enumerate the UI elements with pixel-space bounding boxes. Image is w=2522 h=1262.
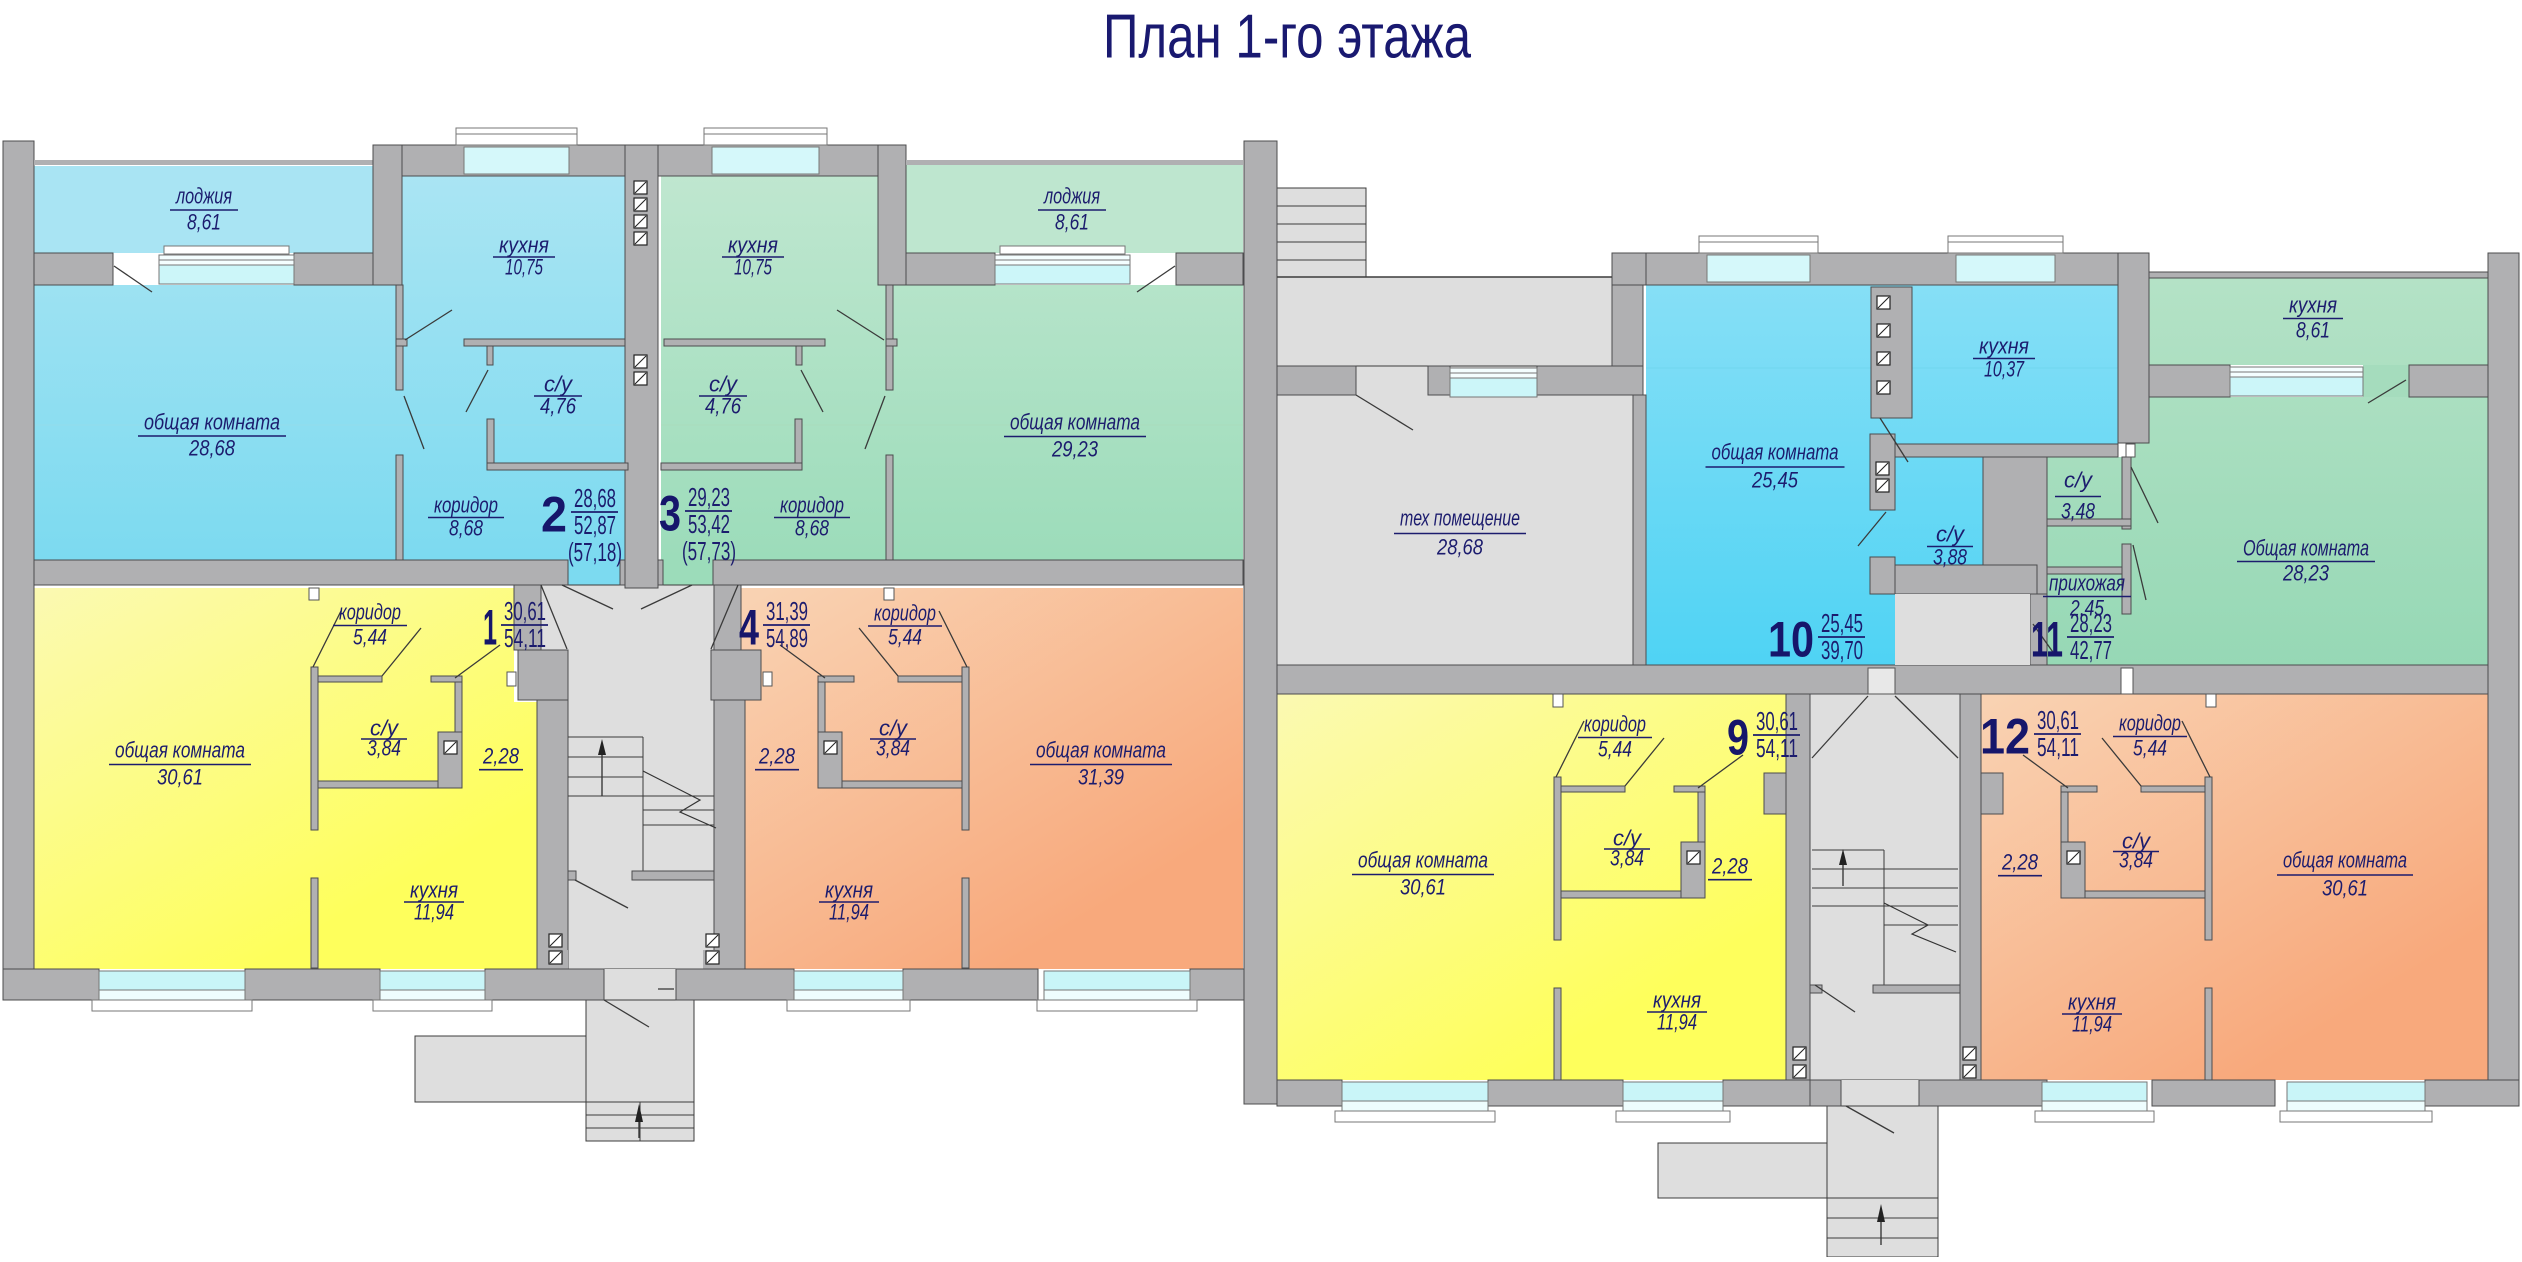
svg-text:9: 9 [1727,710,1749,766]
svg-text:коридор: коридор [339,600,401,625]
svg-text:8,68: 8,68 [449,516,484,541]
svg-text:3: 3 [659,486,681,542]
svg-text:с/у: с/у [1936,522,1966,547]
svg-text:2,28: 2,28 [482,744,519,769]
svg-text:54,11: 54,11 [1756,733,1798,763]
svg-text:3,84: 3,84 [1610,846,1644,871]
svg-text:8,61: 8,61 [1055,210,1089,235]
svg-text:29,23: 29,23 [1051,437,1098,462]
svg-text:4,76: 4,76 [705,394,742,419]
svg-text:28,68: 28,68 [1436,535,1483,560]
svg-text:коридор: коридор [780,493,844,518]
svg-text:5,44: 5,44 [1598,737,1632,762]
svg-text:11: 11 [2031,612,2063,668]
svg-text:52,87: 52,87 [574,510,616,540]
svg-text:1: 1 [483,600,497,656]
svg-text:31,39: 31,39 [766,596,808,626]
svg-text:28,68: 28,68 [574,483,616,513]
svg-text:11,94: 11,94 [829,900,869,925]
svg-text:Общая комната: Общая комната [2243,536,2369,561]
svg-text:10,75: 10,75 [505,255,544,280]
svg-text:8,61: 8,61 [2296,318,2330,343]
svg-text:тех помещение: тех помещение [1400,506,1520,531]
svg-text:общая комната: общая комната [2283,848,2407,873]
svg-text:общая комната: общая комната [1712,440,1839,465]
svg-text:общая комната: общая комната [1010,410,1140,435]
svg-text:3,84: 3,84 [367,736,401,761]
svg-text:12: 12 [1980,709,2030,765]
svg-text:39,70: 39,70 [1821,635,1863,665]
svg-text:3,88: 3,88 [1933,545,1968,570]
svg-text:10,37: 10,37 [1984,357,2025,382]
svg-text:(57,18): (57,18) [568,537,622,567]
svg-text:31,39: 31,39 [1078,765,1124,790]
svg-text:2,28: 2,28 [2001,850,2038,875]
svg-text:кухня: кухня [1979,334,2029,359]
svg-text:30,61: 30,61 [2037,705,2079,735]
svg-text:8,68: 8,68 [795,516,830,541]
svg-text:30,61: 30,61 [504,596,546,626]
svg-text:10: 10 [1768,612,1814,668]
svg-text:54,11: 54,11 [504,623,546,653]
svg-text:54,89: 54,89 [766,623,808,653]
svg-text:общая комната: общая комната [144,410,280,435]
svg-text:11,94: 11,94 [2072,1012,2112,1037]
svg-text:прихожая: прихожая [2049,571,2125,596]
svg-text:30,61: 30,61 [1400,875,1446,900]
svg-text:4: 4 [739,600,759,656]
svg-text:28,23: 28,23 [2070,608,2112,638]
svg-text:42,77: 42,77 [2070,635,2112,665]
svg-text:28,68: 28,68 [188,436,235,461]
svg-text:3,84: 3,84 [876,736,910,761]
svg-text:3,48: 3,48 [2061,499,2096,524]
svg-text:30,61: 30,61 [2322,876,2368,901]
svg-text:25,45: 25,45 [1821,608,1863,638]
svg-text:11,94: 11,94 [1657,1010,1697,1035]
svg-text:4,76: 4,76 [540,394,577,419]
svg-text:лоджия: лоджия [175,184,233,209]
svg-text:29,23: 29,23 [688,482,730,512]
svg-text:коридор: коридор [2119,711,2181,736]
svg-text:3,84: 3,84 [2119,848,2153,873]
svg-text:11,94: 11,94 [414,900,454,925]
svg-text:30,61: 30,61 [1756,706,1798,736]
svg-text:общая комната: общая комната [1036,738,1166,763]
svg-text:5,44: 5,44 [353,625,387,650]
svg-text:(57,73): (57,73) [682,536,736,566]
svg-text:коридор: коридор [1584,712,1646,737]
svg-text:53,42: 53,42 [688,509,730,539]
svg-text:лоджия: лоджия [1043,184,1101,209]
svg-text:с/у: с/у [2064,468,2094,493]
svg-text:общая комната: общая комната [1358,848,1488,873]
svg-text:8,61: 8,61 [187,210,221,235]
svg-text:10,75: 10,75 [734,255,773,280]
svg-text:5,44: 5,44 [888,625,922,650]
svg-text:28,23: 28,23 [2282,561,2329,586]
svg-text:План 1-го этажа: План 1-го этажа [1103,3,1471,72]
svg-text:кухня: кухня [2289,293,2337,318]
svg-text:общая комната: общая комната [115,738,245,763]
svg-text:2,28: 2,28 [758,744,795,769]
svg-text:5,44: 5,44 [2133,736,2167,761]
svg-text:2,28: 2,28 [1711,854,1748,879]
svg-text:30,61: 30,61 [157,765,203,790]
svg-text:2: 2 [541,487,567,543]
svg-text:25,45: 25,45 [1751,468,1798,493]
svg-text:коридор: коридор [434,493,498,518]
svg-text:коридор: коридор [874,601,936,626]
svg-text:54,11: 54,11 [2037,732,2079,762]
